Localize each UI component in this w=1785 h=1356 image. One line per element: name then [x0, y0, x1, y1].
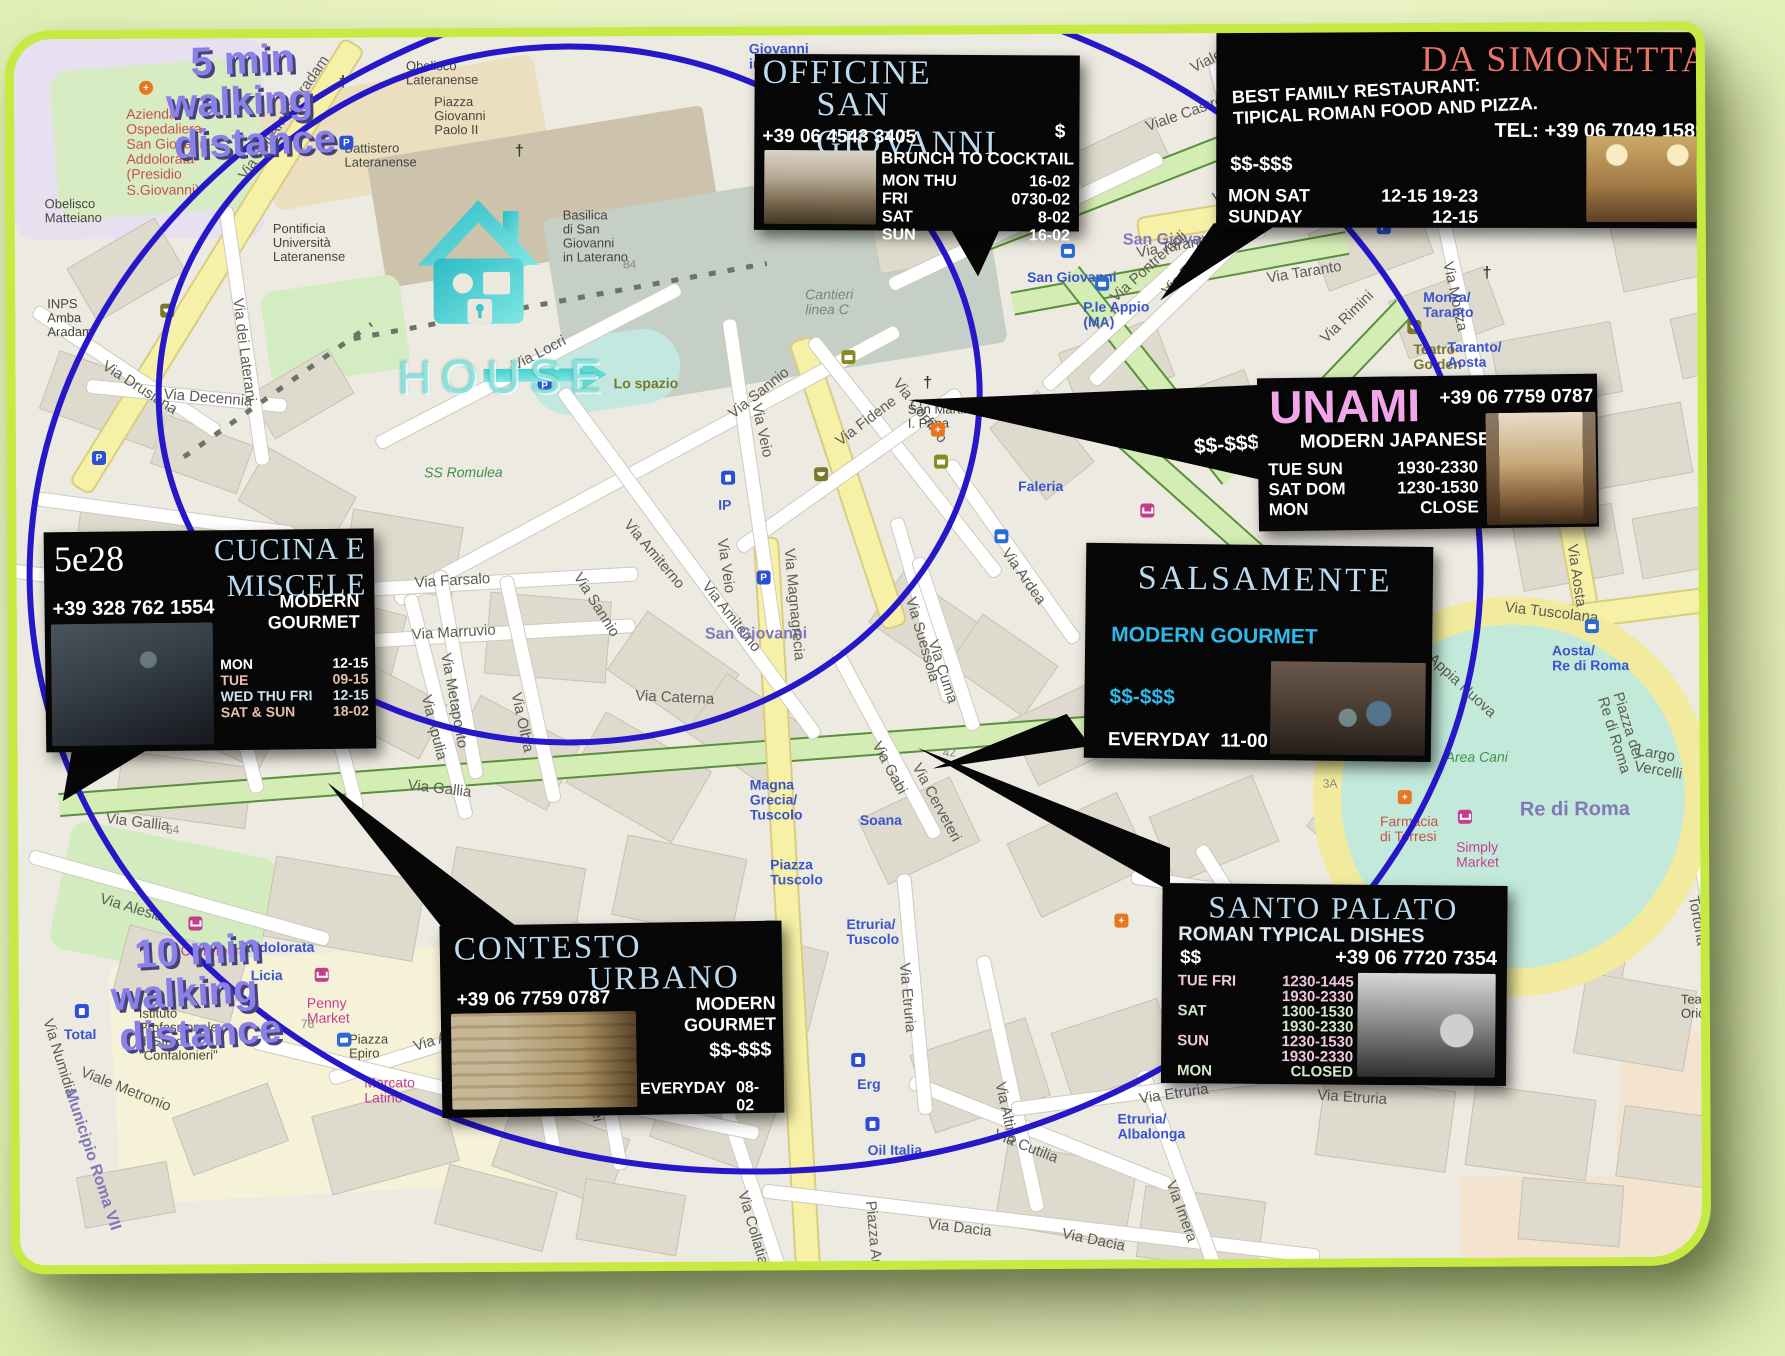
unami-cuisine: MODERN JAPANESE [1300, 429, 1491, 454]
unami-hours: TUE SUN1930-2330SAT DOM1230-1530MONCLOSE [1268, 457, 1479, 520]
contesto-photo [451, 1011, 637, 1110]
salsamente-callout: SALSAMENTE MODERN GOURMET $$-$$$ EVERYDA… [1084, 543, 1434, 762]
church-icon [1696, 916, 1710, 930]
cucina528-number: 5e28 [54, 537, 124, 580]
officine-hours: MON THU16-02FRI0730-02SAT8-02SUN16-02 [882, 173, 1070, 246]
cart-icon [1458, 810, 1472, 824]
unami-phone: +39 06 7759 0787 [1439, 386, 1593, 410]
santopalato-callout: SANTO PALATO ROMAN TYPICAL DISHES $$ +39… [1161, 883, 1508, 1086]
contesto-cuisine: MODERN GOURMET [626, 993, 777, 1037]
ten-min-walking-label: 10 minwalkingdistance [107, 927, 282, 1060]
fuel-icon [75, 1004, 89, 1018]
church-icon [1480, 267, 1494, 281]
house-label: HOUSE [397, 348, 609, 404]
house-icon [411, 193, 547, 334]
contesto-hours: EVERYDAY08-02 [640, 1079, 777, 1117]
salsamente-hours: EVERYDAY11-00 [1108, 729, 1268, 753]
salsamente-cuisine: MODERN GOURMET [1111, 623, 1318, 650]
officine-phone: +39 06 4543 3405 [762, 126, 916, 149]
cucina528-cuisine: MODERN GOURMET [219, 591, 360, 635]
salsamente-photo [1270, 661, 1426, 756]
simonetta-title: DA SIMONETTA [1421, 38, 1709, 81]
simonetta-hours: MON SAT12-15 19-23SUNDAY12-15 [1228, 185, 1478, 227]
salsamente-title: SALSAMENTE [1138, 559, 1393, 600]
contesto-phone: +39 06 7759 0787 [456, 987, 610, 1011]
santopalato-tagline: ROMAN TYPICAL DISHES [1178, 923, 1425, 948]
unami-photo [1485, 412, 1597, 526]
bus-icon [1585, 619, 1599, 633]
five-min-walking-label: 5 minwalkingdistance [164, 37, 337, 167]
cucina528-hours: MON12-15TUE09-15WED THU FRI12-15SAT & SU… [220, 654, 369, 720]
unami-price-on-tail: $$-$$$ [1193, 431, 1260, 460]
santopalato-title: SANTO PALATO [1208, 889, 1458, 927]
santopalato-phone: +39 06 7720 7354 [1335, 947, 1497, 971]
simonetta-photo [1586, 136, 1708, 222]
santopalato-price: $$ [1180, 947, 1201, 969]
cucina528-callout: 5e28 CUCINA E MISCELE +39 328 762 1554 M… [44, 528, 377, 752]
simonetta-callout: DA SIMONETTA BEST FAMILY RESTAURANT: TIP… [1216, 31, 1711, 228]
santopalato-photo [1357, 973, 1496, 1078]
cucina528-phone: +39 328 762 1554 [52, 596, 214, 621]
officine-photo [764, 150, 876, 225]
unami-title: UNAMI [1269, 378, 1421, 434]
officine-callout: OFFICINE SAN GIOVANNI +39 06 4543 3405 $… [754, 54, 1080, 232]
contesto-price: $$-$$$ [709, 1039, 772, 1063]
cucina528-photo [51, 622, 214, 746]
contesto-callout: CONTESTO URBANO +39 06 7759 0787 MODERN … [439, 921, 784, 1118]
simonetta-description: BEST FAMILY RESTAURANT: TIPICAL ROMAN FO… [1231, 72, 1538, 129]
officine-price: $ [1055, 121, 1066, 143]
simonetta-price: $$-$$$ [1230, 153, 1292, 176]
salsamente-price: $$-$$$ [1109, 685, 1175, 710]
santopalato-hours: TUE FRI1230-14451930-2330SAT1300-1530193… [1177, 973, 1354, 1080]
map-sheet: Giovanni in LateranoAzienda Ospedaliera … [5, 22, 1711, 1275]
hospital-cross-icon [139, 81, 153, 95]
unami-callout: UNAMI +39 06 7759 0787 MODERN JAPANESE T… [1257, 374, 1599, 532]
